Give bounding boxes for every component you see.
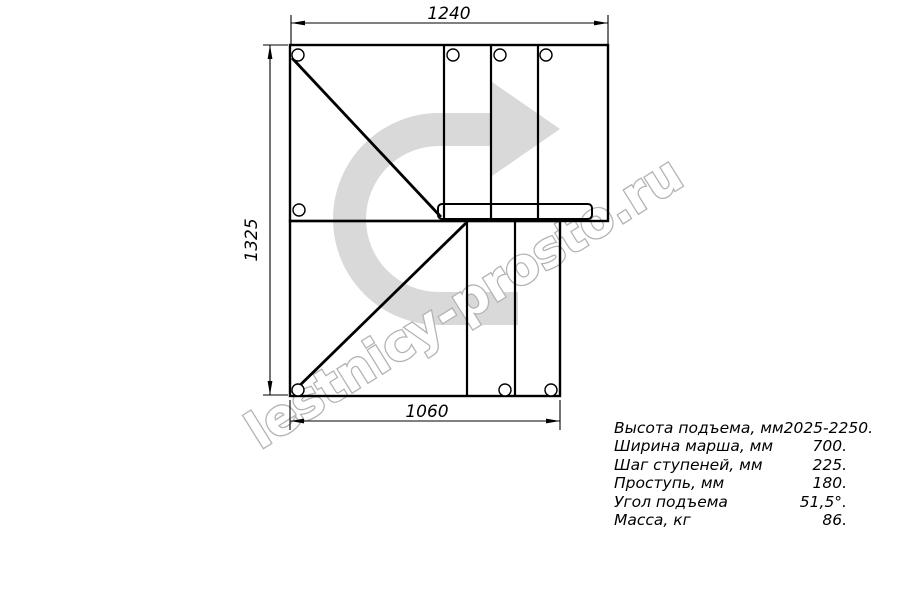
- spec-label: Масса, кг: [614, 511, 691, 529]
- spec-value: 180.: [812, 474, 847, 492]
- dimension-left: [263, 45, 288, 395]
- mount-hole-icon: [545, 384, 557, 396]
- spec-value: 700.: [812, 437, 847, 455]
- spec-row: Ширина марша, мм 700.: [614, 437, 847, 455]
- site-watermark-text: lestnicy-prosto.ru: [236, 145, 693, 460]
- mount-hole-icon: [499, 384, 511, 396]
- mount-hole-icon: [494, 49, 506, 61]
- spec-value: 2025-2250.: [784, 419, 873, 437]
- spec-value: 86.: [822, 511, 847, 529]
- spec-label: Высота подъема, мм: [614, 419, 784, 437]
- mount-hole-icon: [292, 49, 304, 61]
- spec-value: 51,5°.: [800, 493, 847, 511]
- spec-row: Проступь, мм 180.: [614, 474, 847, 492]
- mount-hole-icon: [293, 204, 305, 216]
- mount-hole-icon: [540, 49, 552, 61]
- mount-hole-icon: [447, 49, 459, 61]
- dim-arrow-left-icon: [291, 21, 305, 26]
- spec-label: Ширина марша, мм: [614, 437, 773, 455]
- spec-row: Высота подъема, мм 2025-2250.: [614, 419, 847, 437]
- dim-arrow-right-icon: [594, 21, 608, 26]
- spec-label: Шаг ступеней, мм: [614, 456, 763, 474]
- dim-arrow-right-icon: [546, 419, 560, 424]
- mount-hole-icon: [292, 384, 304, 396]
- dim-top-label: 1240: [427, 4, 470, 24]
- stair-plan-drawing: lestnicy-prosto.ru: [0, 0, 900, 600]
- spec-row: Шаг ступеней, мм 225.: [614, 456, 847, 474]
- dim-bottom-label: 1060: [405, 402, 448, 422]
- spec-label: Проступь, мм: [614, 474, 724, 492]
- specs-table: Высота подъема, мм 2025-2250. Ширина мар…: [614, 419, 847, 529]
- spec-label: Угол подъема: [614, 493, 728, 511]
- dim-arrow-up-icon: [268, 45, 273, 59]
- spec-row: Угол подъема 51,5°.: [614, 493, 847, 511]
- dim-left-label: 1325: [242, 218, 262, 261]
- spec-value: 225.: [812, 456, 847, 474]
- spec-row: Масса, кг 86.: [614, 511, 847, 529]
